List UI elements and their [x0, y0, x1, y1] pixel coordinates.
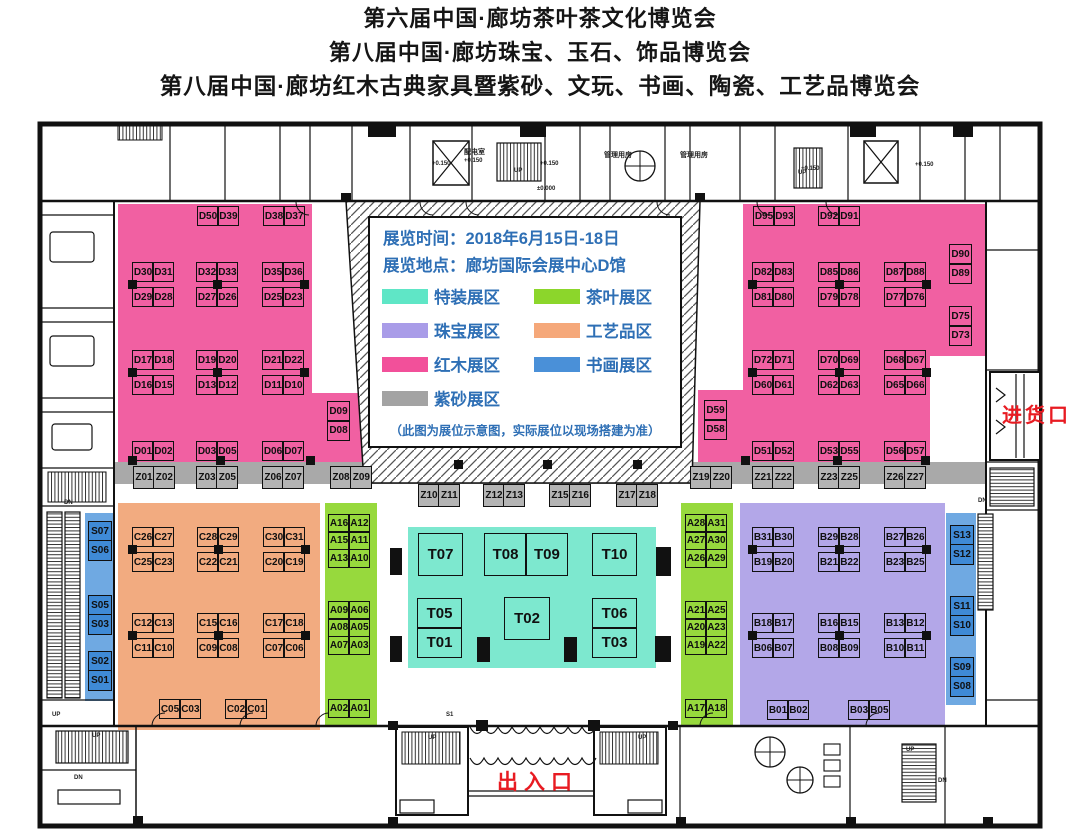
booth-D06: D06: [262, 441, 284, 461]
booth-A22: A22: [705, 636, 727, 655]
booth-Z16: Z16: [569, 484, 591, 507]
legend-swatch-crafts: [534, 323, 580, 338]
booth-C25: C25: [132, 552, 154, 572]
booth-Z01: Z01: [133, 466, 155, 489]
booth-B11: B11: [904, 638, 926, 658]
booth-D66: D66: [904, 375, 926, 395]
exhibition-title-1: 第六届中国·廊坊茶叶茶文化博览会: [0, 2, 1080, 36]
booth-D59: D59: [704, 400, 727, 421]
booth-connector: [213, 280, 222, 289]
booth-Z15: Z15: [549, 484, 571, 507]
booth-C22: C22: [197, 552, 219, 572]
plan-label-UP: UP: [428, 735, 436, 741]
booth-A25: A25: [705, 601, 727, 620]
booth-D09: D09: [327, 401, 350, 422]
booth-A05: A05: [348, 618, 370, 637]
booth-D11: D11: [262, 375, 284, 395]
booth-T10: T10: [592, 533, 637, 576]
booth-Z20: Z20: [710, 466, 732, 489]
booth-S03: S03: [88, 614, 112, 635]
booth-B10: B10: [884, 638, 906, 658]
booth-A19: A19: [685, 636, 707, 655]
goods-entrance-label: 进货口: [1002, 399, 1071, 428]
booth-D95: D95: [753, 206, 775, 226]
zone-redwood-right: [743, 204, 930, 463]
booth-D28: D28: [152, 287, 174, 307]
booth-S13: S13: [950, 525, 974, 546]
booth-A26: A26: [685, 549, 707, 568]
plan-label-+0.150: +0.150: [540, 161, 559, 167]
booth-S09: S09: [950, 657, 974, 678]
booth-A23: A23: [705, 618, 727, 637]
booth-B07: B07: [772, 638, 794, 658]
plan-disclaimer: （此图为展位示意图，实际展位以现场搭建为准）: [370, 421, 680, 439]
booth-T03: T03: [592, 627, 637, 658]
booth-D63: D63: [838, 375, 860, 395]
plan-label-DN: DN: [938, 778, 947, 784]
booth-B30: B30: [772, 527, 794, 547]
legend-swatch-special: [382, 289, 428, 304]
legend-swatch-redwood: [382, 357, 428, 372]
booth-D51: D51: [752, 441, 774, 461]
booth-connector: [748, 280, 757, 289]
booth-A09: A09: [328, 601, 350, 620]
exhibition-place: 展览地点：廊坊国际会展中心D馆: [383, 252, 626, 276]
booth-A13: A13: [328, 549, 350, 568]
booth-A12: A12: [348, 514, 370, 533]
booth-Z22: Z22: [772, 466, 794, 489]
booth-connector: [748, 545, 757, 554]
booth-D79: D79: [818, 287, 840, 307]
booth-D81: D81: [752, 287, 774, 307]
booth-D65: D65: [884, 375, 906, 395]
plan-label-DN: DN: [74, 775, 83, 781]
booth-D52: D52: [772, 441, 794, 461]
booth-D39: D39: [217, 206, 239, 226]
booth-D29: D29: [132, 287, 154, 307]
booth-C17: C17: [263, 613, 285, 633]
legend-label-calligraphy: 书画展区: [586, 352, 652, 376]
legend-swatch-zisha: [382, 391, 428, 406]
booth-D90: D90: [949, 244, 972, 265]
booth-T05: T05: [417, 598, 462, 629]
booth-T02: T02: [504, 597, 550, 640]
plan-label-UP: UP: [514, 168, 522, 174]
booth-S05: S05: [88, 595, 112, 616]
booth-C23: C23: [152, 552, 174, 572]
booth-A18: A18: [705, 699, 727, 718]
legend-swatch-calligraphy: [534, 357, 580, 372]
booth-A01: A01: [348, 699, 370, 718]
booth-B17: B17: [772, 613, 794, 633]
booth-C02: C02: [225, 699, 247, 719]
booth-D13: D13: [196, 375, 218, 395]
booth-A30: A30: [705, 531, 727, 550]
booth-D80: D80: [772, 287, 794, 307]
booth-D35: D35: [262, 262, 284, 282]
booth-D03: D03: [196, 441, 218, 461]
booth-connector: [748, 631, 757, 640]
booth-A16: A16: [328, 514, 350, 533]
booth-D07: D07: [282, 441, 304, 461]
booth-Z03: Z03: [196, 466, 218, 489]
booth-C06: C06: [283, 638, 305, 658]
booth-Z06: Z06: [262, 466, 284, 489]
booth-T06: T06: [592, 598, 637, 629]
booth-S10: S10: [950, 615, 974, 636]
booth-D57: D57: [904, 441, 926, 461]
plan-label-配电室: 配电室: [464, 147, 485, 157]
booth-B08: B08: [818, 638, 840, 658]
booth-connector: [922, 368, 931, 377]
booth-C30: C30: [263, 527, 285, 547]
booth-D91: D91: [838, 206, 860, 226]
booth-C03: C03: [179, 699, 201, 719]
booth-S11: S11: [950, 596, 974, 617]
booth-C05: C05: [159, 699, 181, 719]
booth-B27: B27: [884, 527, 906, 547]
booth-connector: [835, 545, 844, 554]
legend-label-special: 特装展区: [434, 284, 500, 308]
booth-connector: [128, 280, 137, 289]
booth-D87: D87: [884, 262, 906, 282]
plan-label-DN: DN: [64, 500, 73, 506]
booth-D68: D68: [884, 350, 906, 370]
booth-Z17: Z17: [616, 484, 638, 507]
booth-S01: S01: [88, 670, 112, 691]
booth-B19: B19: [752, 552, 774, 572]
booth-A28: A28: [685, 514, 707, 533]
booth-Z10: Z10: [418, 484, 440, 507]
booth-A08: A08: [328, 618, 350, 637]
booth-D62: D62: [818, 375, 840, 395]
booth-B05: B05: [868, 700, 890, 720]
legend-swatch-jewelry: [382, 323, 428, 338]
booth-D58: D58: [704, 419, 727, 440]
plan-label-UP: UP: [638, 735, 646, 741]
booth-B25: B25: [904, 552, 926, 572]
booth-D37: D37: [283, 206, 305, 226]
booth-A17: A17: [685, 699, 707, 718]
booth-B06: B06: [752, 638, 774, 658]
legend-item-calligraphy: 书画展区: [534, 352, 652, 376]
booth-D76: D76: [904, 287, 926, 307]
booth-Z12: Z12: [483, 484, 505, 507]
booth-B23: B23: [884, 552, 906, 572]
booth-A03: A03: [348, 636, 370, 655]
plan-label-+0.150: +0.150: [464, 158, 483, 164]
booth-D31: D31: [152, 262, 174, 282]
booth-D53: D53: [818, 441, 840, 461]
booth-B13: B13: [884, 613, 906, 633]
booth-connector: [301, 545, 310, 554]
booth-T07: T07: [418, 533, 463, 576]
plan-label-管理用房: 管理用房: [680, 150, 708, 160]
booth-D10: D10: [282, 375, 304, 395]
booth-C11: C11: [132, 638, 154, 658]
plan-label-UP: UP: [798, 170, 806, 176]
booth-A06: A06: [348, 601, 370, 620]
booth-D05: D05: [216, 441, 238, 461]
booth-Z07: Z07: [282, 466, 304, 489]
booth-C07: C07: [263, 638, 285, 658]
booth-D12: D12: [216, 375, 238, 395]
legend-item-tea: 茶叶展区: [534, 284, 652, 308]
booth-C08: C08: [217, 638, 239, 658]
booth-C01: C01: [245, 699, 267, 719]
exhibition-title-2: 第八届中国·廊坊珠宝、玉石、饰品博览会: [0, 36, 1080, 70]
legend-item-jewelry: 珠宝展区: [382, 318, 500, 342]
booth-connector: [922, 280, 931, 289]
booth-D83: D83: [772, 262, 794, 282]
info-legend-box: 展览时间：2018年6月15日-18日 展览地点：廊坊国际会展中心D馆 特装展区…: [368, 216, 682, 448]
booth-Z21: Z21: [752, 466, 774, 489]
booth-connector: [301, 631, 310, 640]
booth-Z08: Z08: [330, 466, 352, 489]
booth-Z27: Z27: [904, 466, 926, 489]
booth-D78: D78: [838, 287, 860, 307]
zone-redwood-left: [118, 204, 312, 463]
booth-C27: C27: [152, 527, 174, 547]
booth-D61: D61: [772, 375, 794, 395]
booth-connector: [128, 631, 137, 640]
booth-S12: S12: [950, 544, 974, 565]
booth-A21: A21: [685, 601, 707, 620]
booth-B09: B09: [838, 638, 860, 658]
booth-B03: B03: [848, 700, 870, 720]
booth-C19: C19: [283, 552, 305, 572]
exhibition-floorplan: 第六届中国·廊坊茶叶茶文化博览会 第八届中国·廊坊珠宝、玉石、饰品博览会 第八届…: [0, 0, 1080, 836]
booth-D60: D60: [752, 375, 774, 395]
booth-connector: [300, 280, 309, 289]
main-entrance-label: 出入口: [497, 766, 578, 796]
booth-A15: A15: [328, 531, 350, 550]
booth-D50: D50: [197, 206, 219, 226]
booth-S06: S06: [88, 540, 112, 561]
booth-S02: S02: [88, 651, 112, 672]
booth-D93: D93: [773, 206, 795, 226]
booth-D75: D75: [949, 306, 972, 327]
booth-S07: S07: [88, 521, 112, 542]
booth-T01: T01: [417, 627, 462, 658]
booth-connector: [128, 368, 137, 377]
booth-D92: D92: [818, 206, 840, 226]
booth-A10: A10: [348, 549, 370, 568]
booth-D56: D56: [884, 441, 906, 461]
booth-Z19: Z19: [690, 466, 712, 489]
booth-connector: [213, 368, 222, 377]
legend-swatch-tea: [534, 289, 580, 304]
booth-Z09: Z09: [350, 466, 372, 489]
booth-D27: D27: [196, 287, 218, 307]
booth-D16: D16: [132, 375, 154, 395]
poster-titles: 第六届中国·廊坊茶叶茶文化博览会 第八届中国·廊坊珠宝、玉石、饰品博览会 第八届…: [0, 2, 1080, 104]
legend-item-special: 特装展区: [382, 284, 500, 308]
booth-D89: D89: [949, 263, 972, 284]
booth-B21: B21: [818, 552, 840, 572]
booth-A27: A27: [685, 531, 707, 550]
legend-item-redwood: 红木展区: [382, 352, 500, 376]
booth-C21: C21: [217, 552, 239, 572]
legend-label-jewelry: 珠宝展区: [434, 318, 500, 342]
booth-D25: D25: [262, 287, 284, 307]
booth-C10: C10: [152, 638, 174, 658]
booth-Z26: Z26: [884, 466, 906, 489]
booth-connector: [214, 631, 223, 640]
booth-connector: [128, 545, 137, 554]
exhibition-title-3: 第八届中国·廊坊红木古典家具暨紫砂、文玩、书画、陶瓷、工艺品博览会: [0, 70, 1080, 104]
booth-Z25: Z25: [838, 466, 860, 489]
booth-D08: D08: [327, 420, 350, 441]
booth-D73: D73: [949, 325, 972, 346]
booth-C09: C09: [197, 638, 219, 658]
booth-D26: D26: [216, 287, 238, 307]
booth-B20: B20: [772, 552, 794, 572]
legend-item-crafts: 工艺品区: [534, 318, 652, 342]
booth-connector: [748, 368, 757, 377]
booth-B22: B22: [838, 552, 860, 572]
booth-Z05: Z05: [216, 466, 238, 489]
booth-D15: D15: [152, 375, 174, 395]
booth-D23: D23: [282, 287, 304, 307]
booth-connector: [214, 545, 223, 554]
booth-D55: D55: [838, 441, 860, 461]
booth-A11: A11: [348, 531, 370, 550]
booth-A20: A20: [685, 618, 707, 637]
booth-A07: A07: [328, 636, 350, 655]
booth-D21: D21: [262, 350, 284, 370]
booth-A02: A02: [328, 699, 350, 718]
plan-label-+0.150: +0.150: [432, 161, 451, 167]
legend-label-zisha: 紫砂展区: [434, 386, 500, 410]
plan-label-S1: S1: [446, 712, 453, 718]
booth-D71: D71: [772, 350, 794, 370]
exhibition-time: 展览时间：2018年6月15日-18日: [383, 225, 620, 249]
booth-connector: [835, 631, 844, 640]
plan-label-UP: UP: [92, 733, 100, 739]
booth-B02: B02: [787, 700, 809, 720]
legend-item-zisha: 紫砂展区: [382, 386, 500, 410]
plan-label-DN: DN: [978, 498, 987, 504]
booth-T09: T09: [525, 533, 568, 576]
plan-label-管理用房: 管理用房: [604, 150, 632, 160]
booth-connector: [835, 280, 844, 289]
booth-D77: D77: [884, 287, 906, 307]
booth-connector: [922, 631, 931, 640]
booth-D38: D38: [263, 206, 285, 226]
booth-D01: D01: [132, 441, 154, 461]
booth-Z18: Z18: [636, 484, 658, 507]
booth-Z13: Z13: [503, 484, 525, 507]
legend-label-crafts: 工艺品区: [586, 318, 652, 342]
plan-label-UP: UP: [52, 712, 60, 718]
booth-Z11: Z11: [438, 484, 460, 507]
plan-label-+0.150: +0.150: [915, 162, 934, 168]
legend-label-redwood: 红木展区: [434, 352, 500, 376]
booth-T08: T08: [484, 533, 527, 576]
booth-Z23: Z23: [818, 466, 840, 489]
booth-A29: A29: [705, 549, 727, 568]
booth-C20: C20: [263, 552, 285, 572]
booth-C13: C13: [152, 613, 174, 633]
booth-A31: A31: [705, 514, 727, 533]
booth-Z02: Z02: [153, 466, 175, 489]
booth-B01: B01: [767, 700, 789, 720]
booth-connector: [300, 368, 309, 377]
booth-connector: [922, 545, 931, 554]
booth-S08: S08: [950, 676, 974, 697]
booth-connector: [835, 368, 844, 377]
legend-label-tea: 茶叶展区: [586, 284, 652, 308]
plan-label-UP: UP: [906, 747, 914, 753]
booth-D02: D02: [152, 441, 174, 461]
plan-label-±0.000: ±0.000: [537, 186, 555, 192]
booth-D18: D18: [152, 350, 174, 370]
